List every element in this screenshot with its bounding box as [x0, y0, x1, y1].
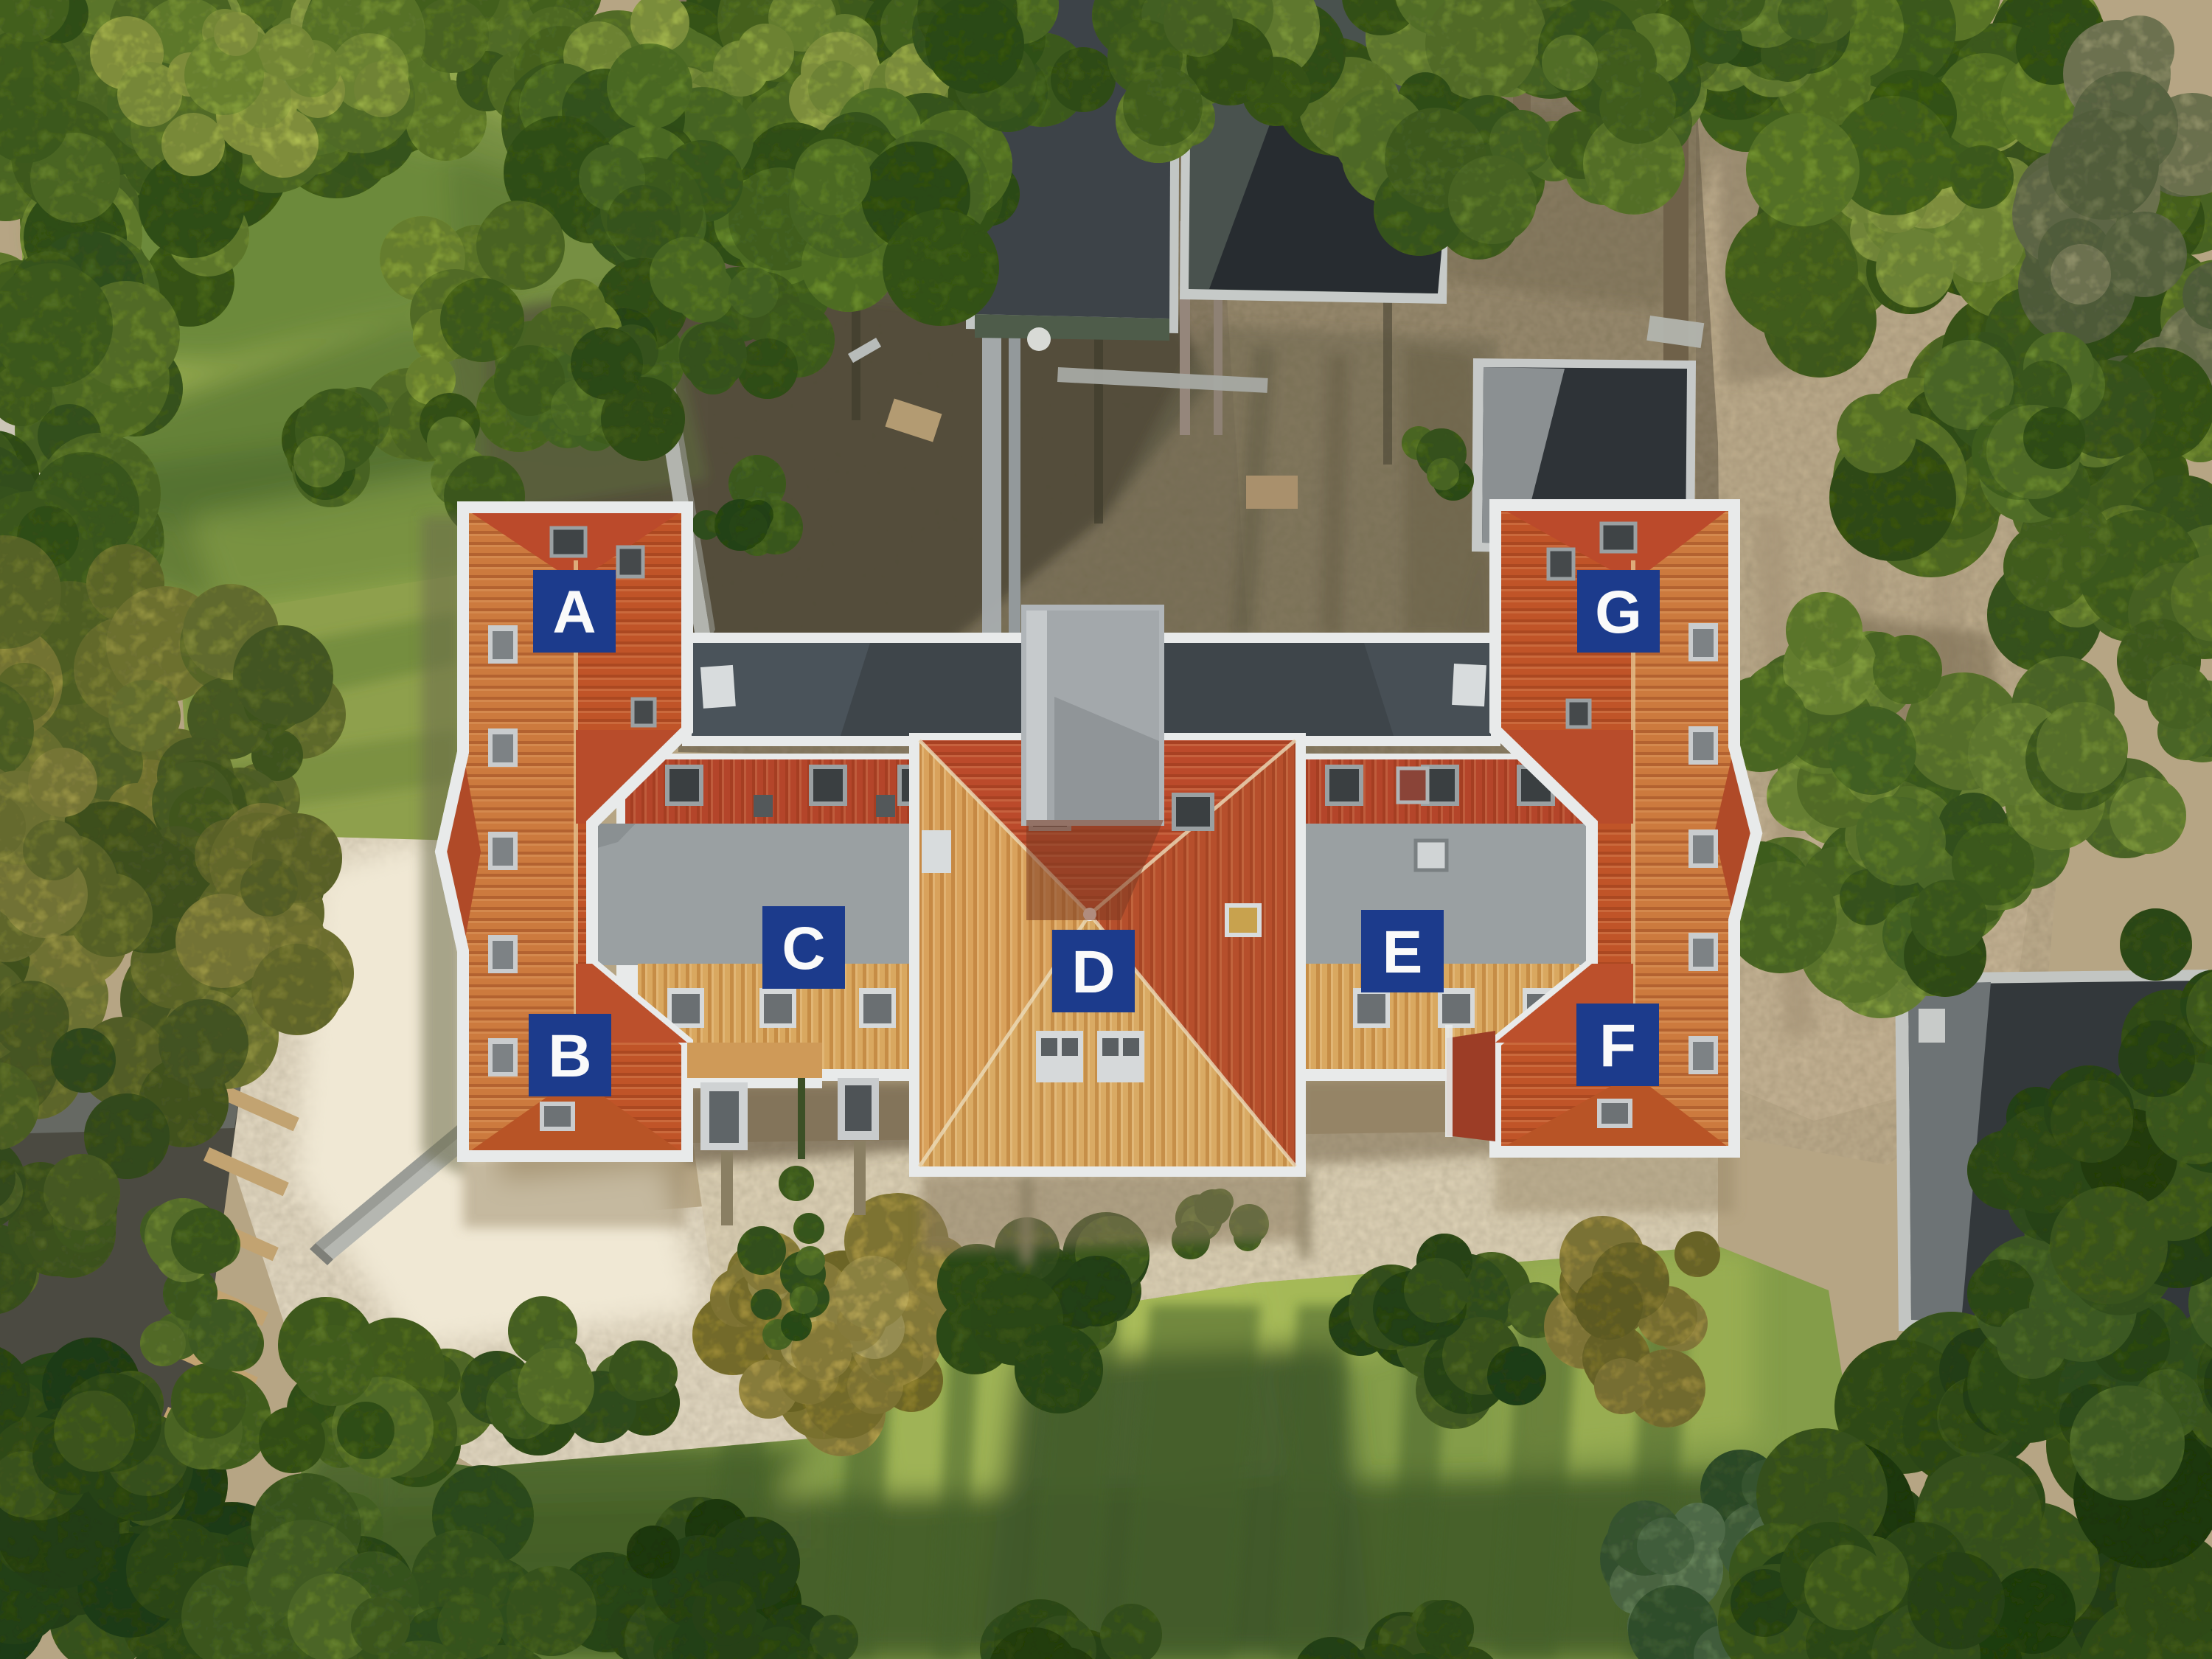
svg-text:G: G	[1595, 579, 1642, 646]
svg-text:F: F	[1599, 1012, 1636, 1079]
svg-text:B: B	[548, 1023, 591, 1090]
svg-text:C: C	[782, 915, 825, 982]
svg-text:A: A	[552, 579, 596, 646]
svg-text:E: E	[1382, 919, 1423, 986]
svg-text:D: D	[1071, 939, 1115, 1006]
